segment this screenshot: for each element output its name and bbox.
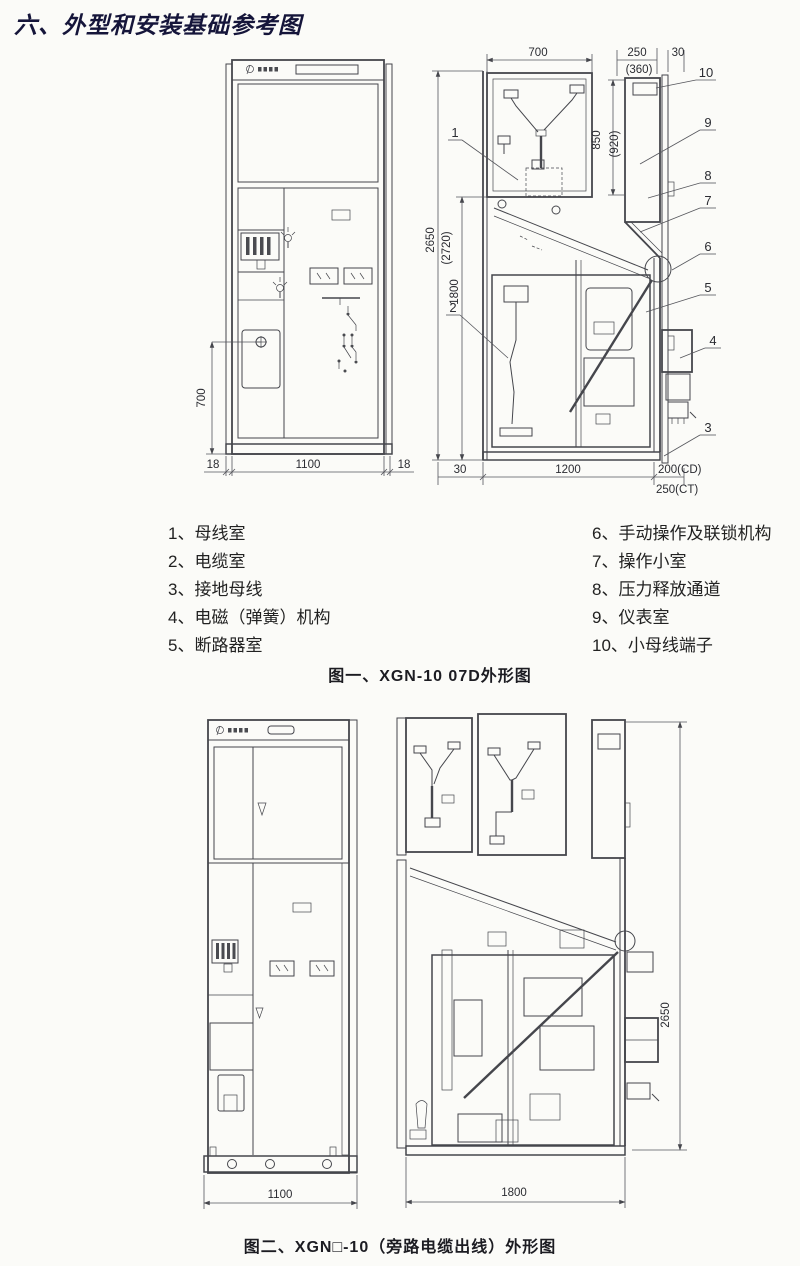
legend-item: 4、电磁（弹簧）机构 <box>168 604 330 632</box>
nameplate <box>268 726 294 734</box>
small-busbar-terminal <box>598 734 620 749</box>
callout-3: 3 <box>704 420 711 435</box>
triangle-mark-icon <box>256 1008 263 1018</box>
legend-item: 2、电缆室 <box>168 548 330 576</box>
dim-360: (360) <box>626 64 653 76</box>
dim-2650: 2650 <box>660 1002 672 1028</box>
interlock-roller <box>645 256 671 282</box>
operating-rod <box>570 280 652 412</box>
cabinet2-front-outline <box>204 720 357 1173</box>
figure2-caption: 图二、XGN□-10（旁路电缆出线）外形图 <box>0 1233 800 1257</box>
busbar-insulators-icon <box>414 742 460 827</box>
dim-30-bottom: 30 <box>454 464 467 476</box>
inner-mechanism-shapes <box>442 930 594 1090</box>
dim-1800: 1800 <box>501 1187 527 1199</box>
dim-850: 850 <box>591 130 603 149</box>
legend-item: 6、手动操作及联锁机构 <box>592 520 771 548</box>
vent-grille-icon <box>212 940 238 972</box>
dim-2650: 2650 <box>425 227 437 253</box>
instrument-compartment <box>625 78 660 222</box>
lower-panel <box>238 188 378 438</box>
page-title: 六、外型和安装基础参考图 <box>14 6 302 40</box>
callout-5: 5 <box>704 280 711 295</box>
dim-1200: 1200 <box>555 464 581 476</box>
busbar-insulators-icon <box>488 742 540 844</box>
figure1-front-view-drawing: 700 18 1100 18 <box>198 48 420 488</box>
legend-left-column: 1、母线室 2、电缆室 3、接地母线 4、电磁（弹簧）机构 5、断路器室 <box>168 520 330 660</box>
label-plate <box>332 210 350 220</box>
callout-10: 10 <box>699 65 713 80</box>
label-plate <box>293 903 311 912</box>
lower-handle-box <box>218 1075 244 1111</box>
cable-room-internals <box>500 286 532 436</box>
figure2-front-view-drawing: 1100 <box>190 703 395 1223</box>
legend-item: 9、仪表室 <box>592 604 771 632</box>
meter-icon <box>310 268 338 284</box>
cabinet-front-outline <box>226 60 392 454</box>
dim-2720: (2720) <box>441 231 453 264</box>
front2-dimensions: 1100 <box>204 1175 357 1209</box>
dim-250ct: 250(CT) <box>656 484 698 496</box>
meter-icon <box>270 961 294 976</box>
callout-8: 8 <box>704 168 711 183</box>
rear-mechanism-boxes <box>625 952 659 1101</box>
legend-item: 1、母线室 <box>168 520 330 548</box>
vent-grille-icon <box>241 233 279 269</box>
dim-18-left: 18 <box>207 459 220 471</box>
legend-item: 8、压力释放通道 <box>592 576 771 604</box>
breaker-room-internals <box>584 288 634 424</box>
callout-2: 2 <box>449 300 456 315</box>
meter-icon <box>310 961 334 976</box>
upper-door <box>238 84 378 182</box>
meter-icon <box>344 268 372 284</box>
indicator-lamp-icon <box>273 277 287 298</box>
dim-200cd: 200(CD) <box>658 464 702 476</box>
legend-item: 10、小母线端子 <box>592 632 771 660</box>
legend-right-column: 6、手动操作及联锁机构 7、操作小室 8、压力释放通道 9、仪表室 10、小母线… <box>592 520 771 660</box>
legend-item: 5、断路器室 <box>168 632 330 660</box>
manual-page: 六、外型和安装基础参考图 <box>0 0 800 1266</box>
mechanism-box <box>210 1023 253 1070</box>
mimic-diagram-icon <box>322 298 360 373</box>
operating-rod <box>464 952 618 1098</box>
callout-9: 9 <box>704 115 711 130</box>
dim-250: 250 <box>627 47 646 59</box>
dim-700: 700 <box>196 388 208 407</box>
upper-door <box>214 747 342 859</box>
busbar-insulators-icon <box>498 85 584 196</box>
triangle-mark-icon <box>258 803 266 815</box>
callout-7: 7 <box>704 193 711 208</box>
brand-logo-icon <box>217 726 249 735</box>
dim-30-top: 30 <box>672 47 685 59</box>
cabinet2-side-outline <box>397 714 659 1155</box>
front-dimensions: 700 18 1100 18 <box>196 342 414 476</box>
dim-700-top: 700 <box>528 47 547 59</box>
cabinet-base <box>226 444 392 454</box>
dim-920: (920) <box>609 130 621 157</box>
callout-1: 1 <box>451 125 458 140</box>
brand-logo-icon <box>247 65 279 74</box>
figure1-side-view-drawing: 700 250 30 (360) 850 (920) 2650 (2720) 1… <box>428 40 763 505</box>
figure1-caption: 图一、XGN-10 07D外形图 <box>0 662 800 686</box>
nameplate <box>296 65 358 74</box>
electromagnet-mechanism <box>662 330 696 424</box>
callout-6: 6 <box>704 239 711 254</box>
cabinet-side-outline <box>483 71 696 463</box>
dim-1100: 1100 <box>296 459 321 471</box>
legend-item: 7、操作小室 <box>592 548 771 576</box>
dim-1100: 1100 <box>268 1189 293 1201</box>
callout-4: 4 <box>709 333 716 348</box>
figure2-side-view-drawing: 2650 1800 <box>392 700 700 1225</box>
legend-item: 3、接地母线 <box>168 576 330 604</box>
cabinet-base <box>204 1147 357 1172</box>
dim-18-right: 18 <box>398 459 411 471</box>
front-door-edge <box>662 75 668 463</box>
small-busbar-terminal <box>633 83 657 95</box>
